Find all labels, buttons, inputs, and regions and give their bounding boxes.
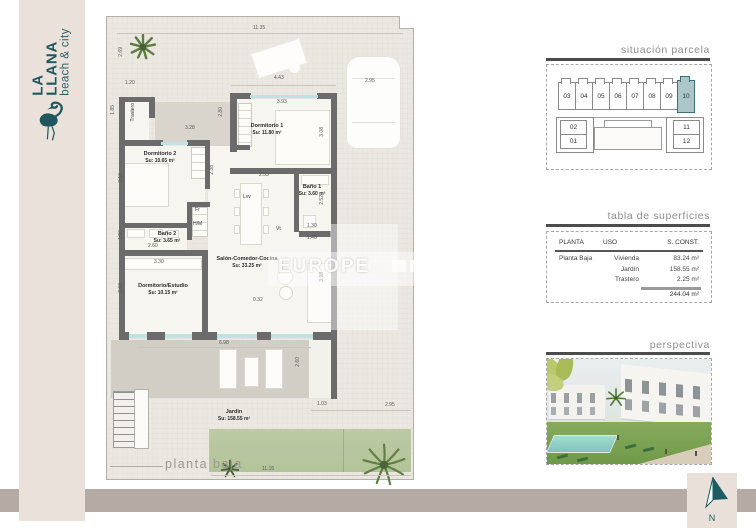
surfaces-table: PLANTA USO S. CONST. Planta BajaVivienda…	[546, 231, 712, 303]
room-label: Salón-Comedor-CocinaSu: 33.25 m²	[216, 256, 277, 269]
dimension-label: 3.93	[277, 100, 287, 105]
dimension-label: 11.35	[253, 26, 265, 31]
parcel-unit-04: 04	[575, 82, 593, 110]
room-label: Dormitorio 1Su: 11.80 m²	[251, 123, 284, 136]
plan-annotations: 11.352.694.432.951.201.853.282.803.933.0…	[107, 17, 413, 479]
render-windows	[625, 399, 707, 419]
parcel-unit-03: 03	[558, 82, 576, 110]
dimension-label: 11.15	[262, 467, 274, 472]
panel-rule	[546, 224, 710, 227]
fixture-label: Vt	[276, 227, 281, 232]
dimension-label: 6.98	[219, 341, 229, 346]
render-windows	[551, 407, 603, 415]
parcel-unit-06: 06	[609, 82, 627, 110]
fixture-label: Lvv	[243, 195, 251, 200]
dimension-label: 1.20	[125, 81, 135, 86]
parcel-unit-12: 12	[673, 134, 700, 149]
panel-title-situacion: situación parcela	[546, 44, 710, 56]
dimension-label: 1.30	[307, 224, 317, 229]
site-plan-right-block: 1112	[666, 117, 704, 153]
footer-bar	[0, 489, 756, 512]
brochure-page: LA LLANA beach & city	[0, 0, 756, 528]
panel-rule	[546, 58, 710, 61]
brand-sidebar: LA LLANA beach & city	[19, 0, 85, 521]
dimension-label: 2.95	[385, 403, 395, 408]
dimension-label: 3.08	[119, 283, 124, 293]
render-building-right	[621, 364, 711, 427]
perspective-render	[546, 358, 712, 465]
dimension-label: 2.60	[148, 244, 158, 249]
render-person	[695, 451, 697, 456]
brand-name-line2: LLANA	[46, 28, 60, 95]
room-label: JardínSu: 158.55 m²	[218, 409, 250, 422]
dimension-label: 3.30	[154, 260, 164, 265]
fixture-label: Fr	[195, 208, 200, 213]
parcel-unit-01: 01	[560, 134, 587, 149]
room-label: Baño 2Su: 3.65 m²	[154, 231, 181, 244]
render-palm	[603, 385, 629, 411]
dimension-label: 3.08	[320, 127, 325, 137]
dimension-label: 3.10	[119, 173, 124, 183]
table-rows: Planta BajaVivienda83.24 m²Jardín158.55 …	[547, 255, 711, 287]
flamingo-icon	[33, 96, 71, 144]
brand-logo: LA LLANA beach & city	[32, 28, 73, 95]
dimension-label: 2.52	[320, 195, 325, 205]
table-header-sconst: S. CONST.	[667, 239, 699, 246]
dimension-label: 1.85	[111, 105, 116, 115]
dimension-label: 1.03	[317, 402, 327, 407]
dimension-label: 3.28	[185, 126, 195, 131]
panel-title-perspectiva: perspectiva	[546, 339, 710, 351]
site-plan-pool	[594, 127, 662, 150]
parcel-unit-02: 02	[560, 120, 587, 135]
floor-plan: 11.352.694.432.951.201.853.282.803.933.0…	[106, 16, 414, 480]
site-plan: 0304050607080910 0201 1112	[546, 64, 712, 170]
surface-row: Trastero2.25 m²	[547, 276, 711, 287]
dimension-label: 2.69	[119, 47, 124, 57]
fixture-label: Trastero	[131, 103, 136, 121]
dimension-label: 2.80	[219, 107, 224, 117]
caption-leader-line	[110, 466, 163, 467]
dimension-label: 2.95	[365, 79, 375, 84]
render-person	[617, 435, 619, 440]
parcel-unit-05: 05	[592, 82, 610, 110]
site-plan-left-block: 0201	[556, 117, 594, 153]
render-windows	[625, 379, 707, 401]
parcel-unit-07: 07	[626, 82, 644, 110]
parcel-unit-09: 09	[660, 82, 678, 110]
parcel-unit-10: 10	[677, 80, 695, 113]
render-person	[665, 449, 667, 454]
dimension-label: 2.53	[259, 173, 269, 178]
dimension-label: 3.98	[320, 272, 325, 282]
room-label: Dormitorio/EstudioSu: 10.15 m²	[138, 283, 188, 296]
render-pool	[547, 436, 616, 452]
dimension-label: 1.40	[307, 236, 317, 241]
fixture-label: H/M	[193, 222, 202, 227]
north-label: N	[687, 513, 737, 523]
plan-caption: planta baja	[165, 457, 243, 471]
table-total-rule	[641, 287, 701, 290]
room-label: Baño 1Su: 3.60 m²	[299, 184, 326, 197]
table-header-uso: USO	[603, 239, 617, 246]
north-arrow-icon	[687, 473, 737, 513]
table-total-value: 244.04 m²	[670, 291, 699, 298]
compass: N	[687, 473, 737, 528]
room-label: Dormitorio 2Su: 10.65 m²	[144, 151, 177, 164]
dimension-label: 4.43	[274, 76, 284, 81]
panel-title-superficies: tabla de superficies	[546, 210, 710, 222]
dimension-label: 2.38	[210, 165, 215, 175]
surface-row: Jardín158.55 m²	[547, 266, 711, 277]
panel-rule	[546, 352, 710, 355]
dimension-label: 1.50	[119, 230, 124, 240]
brand-tagline: beach & city	[60, 28, 73, 95]
render-windows	[551, 393, 603, 403]
parcel-unit-11: 11	[673, 120, 700, 135]
dimension-label: 0.32	[253, 298, 263, 303]
parcel-unit-08: 08	[643, 82, 661, 110]
table-header-planta: PLANTA	[559, 239, 584, 246]
dimension-label: 2.60	[296, 357, 301, 367]
surface-row: Planta BajaVivienda83.24 m²	[547, 255, 711, 266]
table-header-rule	[555, 250, 703, 252]
